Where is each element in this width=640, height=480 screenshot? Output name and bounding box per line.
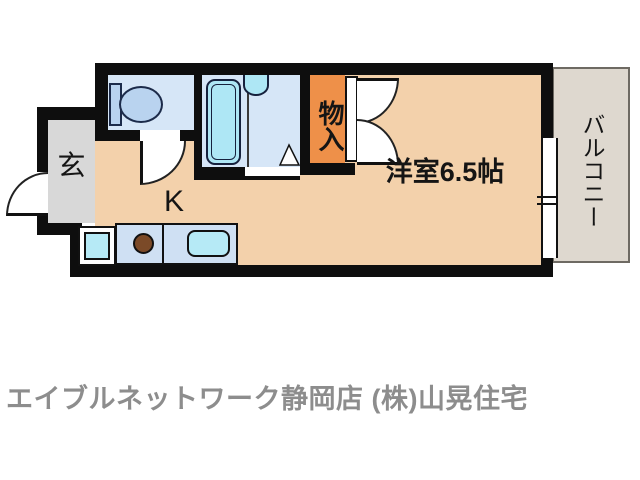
bathtub-icon (206, 79, 241, 165)
bathtub-rim (211, 84, 236, 160)
agency-name-text: エイブルネットワーク静岡店 (株)山晃住宅 (6, 377, 528, 416)
balcony-label: バルコニー (578, 100, 604, 240)
bathroom-sink-icon (243, 75, 269, 96)
kitchen-sink-icon (187, 230, 230, 257)
toilet-door-opening (140, 130, 180, 141)
wall-segment (541, 63, 553, 138)
wall-segment (95, 130, 140, 141)
main-room-label: 洋室6.5帖 (355, 158, 535, 186)
bathroom-threshold (245, 167, 300, 176)
wall-segment (95, 63, 553, 75)
counter-divider (162, 223, 164, 265)
entrance-door-swing-icon (6, 172, 48, 216)
stove-burner-icon (133, 233, 154, 254)
window-tick (537, 203, 557, 205)
entrance-label: 玄 (48, 151, 95, 180)
closet-label: 物入 (312, 88, 344, 164)
wall-segment (300, 163, 355, 175)
window-tick (537, 196, 557, 198)
wall-segment (70, 265, 553, 277)
floor-plan: 玄 K 洋室6.5帖 物入 バルコニー エイブルネットワーク静岡店 (株)山晃住… (0, 0, 640, 480)
wall-segment (300, 63, 310, 175)
washer-space-icon (84, 232, 110, 260)
kitchen-label: K (148, 186, 200, 218)
bathroom-door-icon (279, 143, 301, 167)
wall-segment (194, 63, 202, 180)
toilet-bowl-icon (119, 86, 163, 123)
wall-segment (37, 107, 48, 172)
balcony-window (541, 138, 558, 258)
